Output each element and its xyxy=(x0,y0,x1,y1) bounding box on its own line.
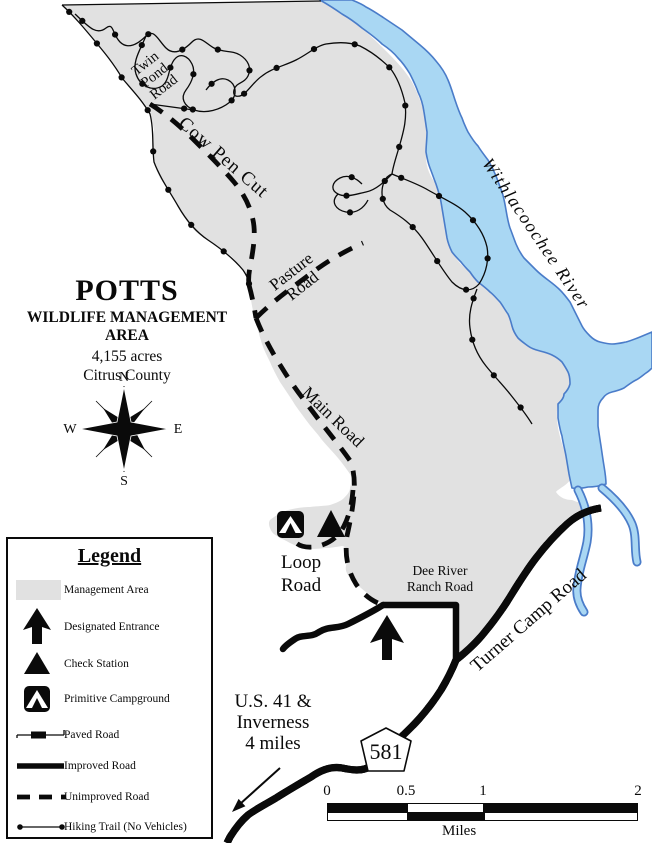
improved-roads xyxy=(283,605,456,660)
legend-item-label: Unimproved Road xyxy=(64,791,149,803)
designated-entrance-legend-icon xyxy=(22,607,52,650)
us41-direction-arrow xyxy=(232,768,280,812)
legend-title: Legend xyxy=(8,545,211,568)
legend-panel: Legend Management Area Designated Entran… xyxy=(6,537,213,839)
legend-item-label: Improved Road xyxy=(64,760,136,772)
loop-road-label: Loop Road xyxy=(281,551,321,597)
compass-rose-icon xyxy=(80,386,168,472)
map-subtitle: WILDLIFE MANAGEMENT AREA xyxy=(8,309,246,345)
management-area-swatch-icon xyxy=(16,580,61,600)
scale-tick: 1 xyxy=(479,783,487,800)
page-title: POTTS xyxy=(8,276,246,306)
designated-entrance-icon xyxy=(370,615,404,660)
paved-road-legend-icon xyxy=(16,727,68,746)
us41-inverness-note: U.S. 41 & Inverness 4 miles xyxy=(223,691,323,754)
highway-581-number: 581 xyxy=(370,739,403,765)
river-streams xyxy=(577,488,637,612)
scale-tick: 0 xyxy=(323,783,331,800)
legend-item-label: Primitive Campground xyxy=(64,693,170,705)
primitive-campground-icon xyxy=(277,511,304,538)
compass-west-label: W xyxy=(63,422,76,438)
legend-item-label: Paved Road xyxy=(64,729,119,741)
scale-bar-graphic xyxy=(327,803,638,821)
compass-south-label: S xyxy=(120,474,128,490)
legend-item-label: Designated Entrance xyxy=(64,621,159,633)
compass-east-label: E xyxy=(174,422,183,438)
improved-road-legend-icon xyxy=(16,759,68,778)
scale-tick: 2 xyxy=(634,783,642,800)
primitive-campground-legend-icon xyxy=(23,685,51,718)
check-station-legend-icon xyxy=(23,651,51,680)
dee-river-ranch-road-label: Dee River Ranch Road xyxy=(390,563,490,595)
hiking-trail-legend-icon xyxy=(16,820,68,839)
legend-item-label: Hiking Trail (No Vehicles) xyxy=(64,821,187,833)
legend-item-label: Check Station xyxy=(64,658,129,670)
potts-wma-map: POTTS WILDLIFE MANAGEMENT AREA 4,155 acr… xyxy=(0,0,652,843)
unimproved-road-legend-icon xyxy=(16,790,68,809)
compass-north-label: N xyxy=(119,370,129,386)
map-acreage: 4,155 acres xyxy=(8,348,246,366)
scale-tick: 0.5 xyxy=(397,783,416,800)
legend-item-label: Management Area xyxy=(64,584,149,596)
improved-road-west-branch-path xyxy=(283,605,383,649)
map-title-block: POTTS WILDLIFE MANAGEMENT AREA 4,155 acr… xyxy=(8,276,246,385)
scale-bar-unit: Miles xyxy=(442,823,476,840)
